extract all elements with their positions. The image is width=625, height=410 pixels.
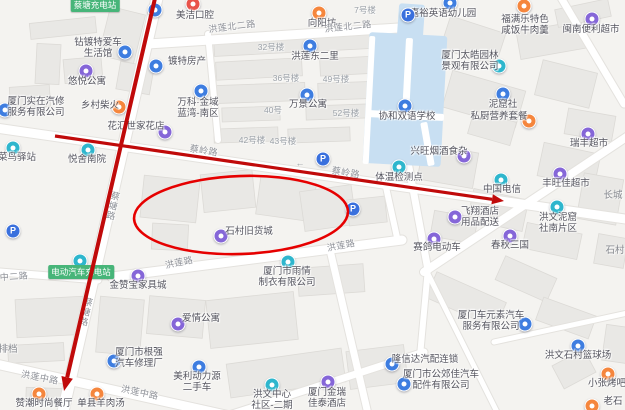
- poi-dot-icon: [606, 372, 611, 377]
- poi-label-huahui-florist: 花汇世家花店: [107, 121, 164, 132]
- poi-label-sichu-meals: 私厨营养套餐: [470, 111, 527, 122]
- poi-label-minnan-store: 闽南便利超市: [562, 24, 619, 35]
- poi-dot-icon: [305, 93, 310, 98]
- poi-label-meili-usedcar: 美利动力源二手车: [173, 371, 221, 393]
- poi-dot-icon: [154, 64, 159, 69]
- poi-label-xiangcun-chaihuo: 乡村柴火: [81, 100, 119, 111]
- poi-label-xingwang-tobacco: 兴旺烟酒食杂: [410, 146, 467, 157]
- poi-dot-icon: [37, 392, 42, 397]
- poi-label-shicun-basketball-court: 洪文石村篮球场: [545, 350, 612, 361]
- poi-label-feixiang-hotel-supply: 飞翔酒店用品配送: [461, 206, 499, 228]
- poi-label-aiqing-apartment: 爱情公寓: [182, 313, 220, 324]
- poi-label-taihao-garden: 厦门太皓园林景观有限公司: [441, 50, 498, 72]
- road-label: 洪莲中路: [120, 382, 160, 403]
- poi-marker-station-marker[interactable]: [148, 3, 163, 18]
- area-label: 40号: [264, 104, 282, 116]
- parking-icon: P: [10, 227, 16, 236]
- road-label: 蔡塘路: [103, 190, 122, 222]
- oneway-arrow-icon: ←: [296, 158, 305, 168]
- parking-icon: P: [350, 205, 356, 214]
- poi-dot-icon: [576, 344, 581, 349]
- area-label: 排档: [0, 341, 18, 355]
- poi-label-vanke-lanwan: 万科·金域蓝湾-南区: [177, 97, 218, 119]
- poi-label-cainiao-post: 菜鸟驿站: [0, 152, 36, 163]
- road-label: 蔡塘路: [76, 296, 95, 328]
- poi-label-wanjing-apartment: 万景公寓: [289, 99, 327, 110]
- poi-label-shicun-old-goods-city: 石村旧货城: [225, 226, 273, 237]
- poi-dot-icon: [432, 237, 437, 242]
- poi-label-dute-realestate: 镀特房产: [168, 56, 206, 67]
- poi-dot-icon: [317, 11, 322, 16]
- poi-label-fengwangjia-market: 丰旺佳超市: [542, 178, 590, 189]
- parking-icon: P: [320, 155, 326, 164]
- parking-icon: P: [405, 11, 411, 20]
- poi-label-genqiang-autorepair: 厦门市根强汽车修理厂: [115, 347, 163, 369]
- road-label: 洪莲中路: [20, 367, 60, 387]
- poi-label-jiayu-kindergarten: 嘉裕英语幼儿园: [410, 8, 477, 19]
- poi-dot-icon: [95, 392, 100, 397]
- poi-marker-parking-3[interactable]: P: [346, 202, 361, 217]
- poi-dot-icon: [326, 380, 331, 385]
- poi-dot-icon: [78, 259, 83, 264]
- poi-dot-icon: [176, 322, 181, 327]
- poi-dot-icon: [522, 4, 527, 9]
- poi-label-fumanle: 福满乐特色咸饭牛肉羹: [501, 14, 549, 36]
- poi-marker-laoshi-bbq[interactable]: [585, 399, 600, 410]
- poi-label-jinzanbao-furniture: 金赞宝家具城: [109, 280, 166, 291]
- poi-label-yueshe-nanyuan: 悦舍南院: [68, 154, 106, 165]
- road-label: 蔡岭路: [331, 163, 361, 180]
- poi-label-xiaozhang-bbq: 小张烤吧: [588, 378, 625, 389]
- poi-dot-icon: [555, 205, 560, 210]
- poi-dot-icon: [219, 234, 224, 239]
- poi-dot-icon: [270, 383, 275, 388]
- poi-dot-icon: [153, 8, 158, 13]
- poi-label-zanchao-restaurant: 赞潮时尚餐厅: [15, 398, 72, 409]
- poi-dot-icon: [397, 165, 402, 170]
- poi-dot-icon: [508, 234, 513, 239]
- poi-label-shanxian-muttonsoup: 单县羊肉汤: [77, 398, 125, 409]
- poi-marker-parking-4[interactable]: P: [401, 8, 416, 23]
- road-label: 中二路: [0, 269, 29, 284]
- poi-dot-icon: [84, 69, 89, 74]
- charging-station-label: 电动汽车充电站: [48, 265, 114, 279]
- map-labels-layer: 美洁口腔向阳坊嘉裕英语幼儿园福满乐特色咸饭牛肉羹闽南便利超市洪莲东二里钻镀特爱车…: [0, 0, 625, 410]
- poi-marker-dute-realestate[interactable]: [149, 59, 164, 74]
- poi-label-shizai-autorepair: 厦门实在汽修服务有限公司: [7, 96, 64, 118]
- poi-marker-fumanle[interactable]: [517, 0, 532, 14]
- poi-label-jinrui-jiatai-hotel: 厦门金瑞佳泰酒店: [308, 387, 346, 409]
- poi-dot-icon: [199, 89, 204, 94]
- poi-label-chunqiu-sanguo: 春秋三国: [491, 240, 529, 251]
- poi-label-zuandute-car: 钻镀特爱车生活馆: [74, 37, 122, 59]
- poi-label-xiehe-school: 协和双语学校: [378, 111, 435, 122]
- road-label: 洪莲路: [164, 253, 195, 272]
- poi-label-cheyuansu-auto: 厦门车元素汽车服务有限公司: [458, 310, 525, 332]
- area-label: 49号楼: [323, 73, 349, 85]
- poi-label-gongjiaojia-autoparts: 厦门市公郊佳汽车配件有限公司: [403, 369, 479, 391]
- area-label: 7号楼: [354, 4, 376, 16]
- poi-label-honglian-dongerli: 洪莲东二里: [291, 51, 339, 62]
- poi-dot-icon: [501, 92, 506, 97]
- poi-dot-icon: [448, 1, 453, 6]
- area-label: 42号楼: [239, 134, 265, 146]
- poi-dot-icon: [11, 146, 16, 151]
- road-label: 洪莲路: [326, 236, 356, 254]
- poi-label-china-telecom: 中国电信: [483, 184, 521, 195]
- poi-dot-icon: [86, 148, 91, 153]
- poi-marker-parking-1[interactable]: P: [6, 224, 21, 239]
- poi-marker-parking-2[interactable]: P: [316, 152, 331, 167]
- poi-dot-icon: [590, 404, 595, 409]
- area-label: 32号楼: [258, 41, 284, 53]
- poi-dot-icon: [586, 132, 591, 137]
- poi-dot-icon: [558, 172, 563, 177]
- area-label: 长城: [603, 187, 622, 201]
- poi-label-youyue-apartment: 悠悦公寓: [68, 76, 106, 87]
- poi-label-yuqing-garment: 厦门市雨情制衣有限公司: [258, 266, 315, 288]
- poi-dot-icon: [453, 215, 458, 220]
- map-canvas[interactable]: 美洁口腔向阳坊嘉裕英语幼儿园福满乐特色咸饭牛肉羹闽南便利超市洪莲东二里钻镀特爱车…: [0, 0, 625, 410]
- poi-dot-icon: [403, 104, 408, 109]
- poi-dot-icon: [197, 365, 202, 370]
- poi-label-temp-check-point: 体温检测点: [375, 172, 423, 183]
- poi-dot-icon: [136, 274, 141, 279]
- poi-label-ruifeng-market: 瑞丰超市: [570, 138, 608, 149]
- area-label: 43号楼: [270, 135, 296, 147]
- poi-label-hongwen-center-community: 洪文中心社区-二期: [251, 389, 292, 410]
- poi-dot-icon: [308, 44, 313, 49]
- poi-label-laoshi-bbq: 老石: [603, 396, 622, 407]
- poi-label-nikushe: 泥窟社: [489, 99, 518, 110]
- poi-label-longxinda-autoparts: 隆信达汽配连锁: [392, 354, 459, 365]
- poi-dot-icon: [590, 17, 595, 22]
- charging-station-label: 蔡塘充电站: [71, 0, 120, 12]
- road-label: 蔡岭路: [189, 141, 219, 158]
- poi-dot-icon: [286, 260, 291, 265]
- poi-dot-icon: [123, 50, 128, 55]
- poi-label-meijie-dental: 美洁口腔: [176, 10, 214, 21]
- poi-dot-icon: [499, 178, 504, 183]
- poi-label-hongwen-niku-south: 洪文泥窟社南片区: [539, 212, 577, 234]
- road-label: 洪莲北二路: [208, 17, 257, 36]
- poi-label-saige-ebike: 赛鸽电动车: [413, 242, 461, 253]
- area-label: 36号楼: [273, 72, 299, 84]
- area-label: 52号楼: [333, 107, 359, 119]
- poi-dot-icon: [191, 2, 196, 7]
- area-label: 石村: [605, 242, 624, 256]
